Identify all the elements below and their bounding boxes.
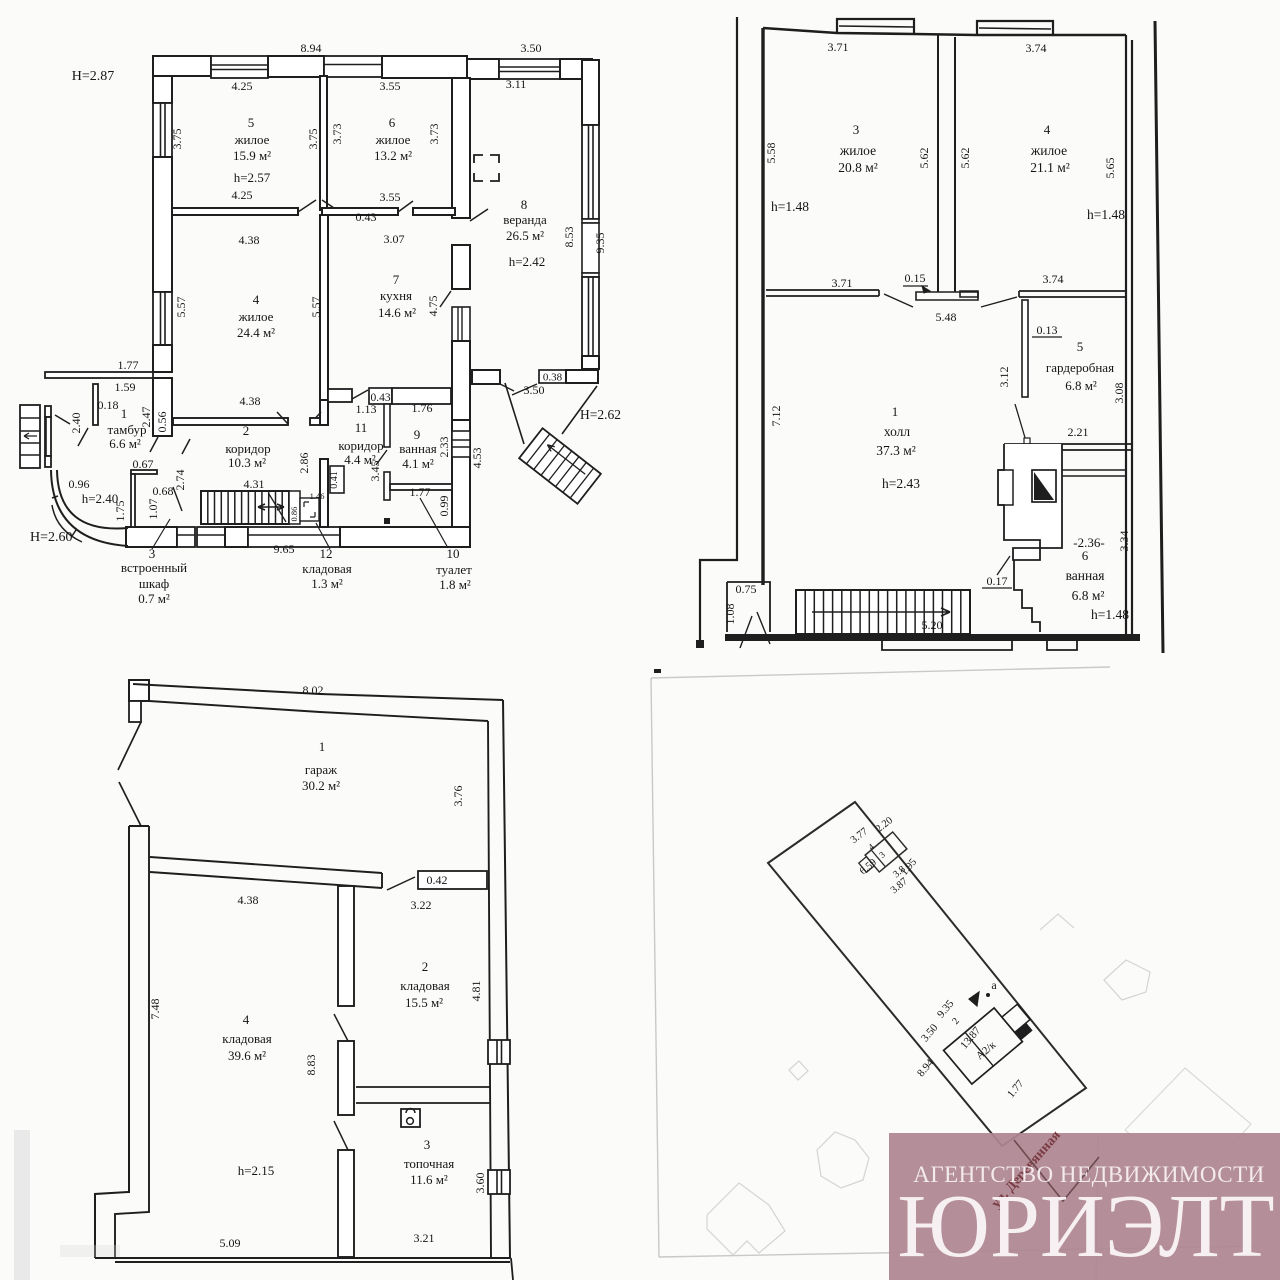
svg-text:1.13: 1.13	[356, 402, 377, 416]
svg-text:4.38: 4.38	[239, 233, 260, 247]
svg-text:1.3 м²: 1.3 м²	[311, 576, 343, 591]
svg-text:2.47: 2.47	[139, 407, 153, 428]
svg-text:1: 1	[892, 404, 899, 419]
svg-text:1.8 м²: 1.8 м²	[439, 577, 471, 592]
svg-text:5: 5	[248, 115, 255, 130]
svg-text:жилое: жилое	[238, 309, 274, 324]
svg-text:3.71: 3.71	[832, 276, 853, 290]
svg-text:10.3 м²: 10.3 м²	[228, 455, 266, 470]
svg-text:гардеробная: гардеробная	[1046, 360, 1114, 375]
svg-text:жилое: жилое	[1030, 143, 1067, 158]
svg-text:0.75: 0.75	[736, 582, 757, 596]
svg-text:0.86: 0.86	[289, 507, 299, 522]
svg-text:15.9 м²: 15.9 м²	[233, 148, 271, 163]
svg-text:0.68: 0.68	[153, 484, 174, 498]
svg-text:4.1 м²: 4.1 м²	[402, 456, 434, 471]
svg-text:2.33: 2.33	[437, 437, 451, 458]
svg-text:кладовая: кладовая	[400, 978, 449, 993]
svg-text:3.07: 3.07	[384, 232, 405, 246]
svg-text:8.02: 8.02	[303, 683, 324, 697]
svg-text:туалет: туалет	[436, 562, 472, 577]
svg-text:0.17: 0.17	[987, 574, 1008, 588]
svg-text:3.55: 3.55	[380, 79, 401, 93]
svg-text:5: 5	[1077, 339, 1084, 354]
svg-text:4: 4	[243, 1012, 250, 1027]
svg-text:h=2.57: h=2.57	[234, 170, 271, 185]
svg-text:21.1 м²: 21.1 м²	[1030, 160, 1070, 175]
svg-text:5.09: 5.09	[220, 1236, 241, 1250]
svg-text:8: 8	[521, 197, 528, 212]
svg-text:0.96: 0.96	[69, 477, 90, 491]
svg-text:6: 6	[389, 115, 396, 130]
svg-text:0.43: 0.43	[356, 210, 377, 224]
svg-text:1: 1	[319, 739, 326, 754]
svg-text:3.11: 3.11	[506, 77, 527, 91]
svg-text:2.86: 2.86	[297, 453, 311, 474]
svg-text:1: 1	[121, 406, 128, 421]
svg-text:2.40: 2.40	[69, 413, 83, 434]
svg-text:4.31: 4.31	[244, 477, 265, 491]
svg-text:5.58: 5.58	[764, 143, 778, 164]
svg-text:5.57: 5.57	[309, 297, 323, 318]
svg-text:3.22: 3.22	[411, 898, 432, 912]
svg-text:0.18: 0.18	[98, 398, 119, 412]
svg-text:1.46: 1.46	[310, 491, 325, 501]
svg-text:20.8 м²: 20.8 м²	[838, 160, 878, 175]
svg-text:встроенный: встроенный	[121, 560, 187, 575]
svg-text:30.2 м²: 30.2 м²	[302, 778, 340, 793]
svg-text:топочная: топочная	[404, 1156, 454, 1171]
svg-text:3.34: 3.34	[1117, 531, 1131, 552]
svg-text:8.83: 8.83	[304, 1055, 318, 1076]
svg-text:коридор: коридор	[225, 441, 270, 456]
svg-text:2.74: 2.74	[173, 470, 187, 491]
svg-text:0.7 м²: 0.7 м²	[138, 591, 170, 606]
svg-text:5.57: 5.57	[174, 297, 188, 318]
svg-text:6.8 м²: 6.8 м²	[1065, 378, 1097, 393]
svg-text:7.48: 7.48	[148, 999, 162, 1020]
svg-text:3.73: 3.73	[427, 124, 441, 145]
svg-text:3.50: 3.50	[524, 383, 545, 397]
svg-text:3.75: 3.75	[170, 129, 184, 150]
svg-text:4.38: 4.38	[240, 394, 261, 408]
svg-text:веранда: веранда	[503, 212, 547, 227]
svg-text:2.21: 2.21	[1068, 425, 1089, 439]
svg-text:10: 10	[447, 546, 460, 561]
svg-text:гараж: гараж	[305, 762, 338, 777]
svg-text:9.65: 9.65	[274, 542, 295, 556]
svg-text:5.48: 5.48	[936, 310, 957, 324]
svg-text:3.08: 3.08	[1112, 383, 1126, 404]
svg-text:0.56: 0.56	[155, 412, 169, 433]
svg-text:3.55: 3.55	[380, 190, 401, 204]
svg-text:3.45: 3.45	[368, 461, 382, 482]
svg-text:3.75: 3.75	[306, 129, 320, 150]
svg-text:4.25: 4.25	[232, 79, 253, 93]
svg-text:2: 2	[422, 959, 429, 974]
svg-text:H=2.87: H=2.87	[72, 69, 115, 84]
svg-text:26.5 м²: 26.5 м²	[506, 228, 544, 243]
svg-text:7.12: 7.12	[769, 406, 783, 427]
svg-text:6.6 м²: 6.6 м²	[109, 436, 141, 451]
svg-text:6.8 м²: 6.8 м²	[1072, 588, 1105, 603]
svg-text:-2.36-: -2.36-	[1073, 535, 1104, 550]
svg-text:h=1.48: h=1.48	[771, 199, 809, 214]
svg-text:h=1.48: h=1.48	[1087, 207, 1125, 222]
svg-text:4.53: 4.53	[470, 448, 484, 469]
svg-text:24.4 м²: 24.4 м²	[237, 325, 275, 340]
svg-text:4.81: 4.81	[469, 981, 483, 1002]
svg-text:8.53: 8.53	[562, 227, 576, 248]
svg-text:6: 6	[1082, 548, 1089, 563]
svg-text:h=1.48: h=1.48	[1091, 607, 1129, 622]
svg-text:ванная: ванная	[399, 441, 436, 456]
svg-text:h=2.15: h=2.15	[238, 1163, 275, 1178]
svg-text:3.60: 3.60	[473, 1173, 487, 1194]
svg-text:8.94: 8.94	[301, 41, 322, 55]
svg-text:7: 7	[393, 272, 400, 287]
svg-text:жилое: жилое	[375, 132, 411, 147]
svg-text:1.75: 1.75	[113, 501, 127, 522]
svg-text:1.59: 1.59	[115, 380, 136, 394]
svg-text:13.2 м²: 13.2 м²	[374, 148, 412, 163]
svg-text:39.6 м²: 39.6 м²	[228, 1048, 266, 1063]
svg-text:ЮРИЭЛТ: ЮРИЭЛТ	[897, 1177, 1274, 1276]
svg-text:h=2.43: h=2.43	[882, 476, 920, 491]
svg-text:холл: холл	[884, 424, 911, 439]
svg-text:1.08: 1.08	[723, 604, 737, 625]
svg-text:15.5 м²: 15.5 м²	[405, 995, 443, 1010]
svg-text:11: 11	[355, 420, 368, 435]
svg-text:3.74: 3.74	[1043, 272, 1064, 286]
svg-text:3.12: 3.12	[997, 367, 1011, 388]
svg-text:H=2.62: H=2.62	[580, 407, 621, 422]
svg-text:а: а	[991, 978, 997, 992]
svg-text:коридор: коридор	[338, 438, 383, 453]
svg-text:4.38: 4.38	[238, 893, 259, 907]
svg-text:0.15: 0.15	[905, 271, 926, 285]
svg-text:5.62: 5.62	[917, 148, 931, 169]
svg-text:5.65: 5.65	[1103, 158, 1117, 179]
svg-text:2: 2	[243, 423, 250, 438]
svg-text:1.76: 1.76	[412, 401, 433, 415]
svg-text:11.6 м²: 11.6 м²	[410, 1172, 448, 1187]
svg-text:0.42: 0.42	[427, 873, 448, 887]
svg-text:3.74: 3.74	[1026, 41, 1047, 55]
svg-text:3.71: 3.71	[828, 40, 849, 54]
svg-text:кладовая: кладовая	[302, 561, 351, 576]
svg-text:5.62: 5.62	[958, 148, 972, 169]
svg-text:37.3 м²: 37.3 м²	[876, 443, 916, 458]
svg-text:0.38: 0.38	[543, 372, 563, 384]
svg-text:1.77: 1.77	[118, 358, 139, 372]
svg-text:0.13: 0.13	[1037, 323, 1058, 337]
svg-text:9: 9	[414, 427, 421, 442]
svg-text:ванная: ванная	[1066, 568, 1105, 583]
svg-text:3: 3	[853, 122, 860, 137]
svg-text:3.50: 3.50	[521, 41, 542, 55]
svg-text:кухня: кухня	[380, 288, 412, 303]
svg-text:5.20: 5.20	[922, 618, 943, 632]
svg-text:жилое: жилое	[234, 132, 270, 147]
svg-text:4: 4	[1044, 122, 1051, 137]
svg-text:14.6 м²: 14.6 м²	[378, 305, 416, 320]
svg-text:4.75: 4.75	[426, 296, 440, 317]
svg-text:0.41: 0.41	[329, 471, 340, 489]
svg-text:0.67: 0.67	[133, 457, 154, 471]
svg-text:4.25: 4.25	[232, 188, 253, 202]
svg-text:1.77: 1.77	[410, 485, 431, 499]
svg-text:1.07: 1.07	[146, 499, 160, 520]
svg-text:H=2.60: H=2.60	[30, 530, 73, 545]
svg-text:3.73: 3.73	[330, 124, 344, 145]
svg-text:9.35: 9.35	[593, 233, 607, 254]
svg-text:3.21: 3.21	[414, 1231, 435, 1245]
svg-text:кладовая: кладовая	[222, 1031, 271, 1046]
svg-text:3: 3	[424, 1137, 431, 1152]
svg-text:шкаф: шкаф	[139, 576, 169, 591]
svg-text:4: 4	[253, 292, 260, 307]
svg-text:жилое: жилое	[839, 143, 876, 158]
svg-text:0.99: 0.99	[437, 496, 451, 517]
svg-text:h=2.42: h=2.42	[509, 254, 546, 269]
svg-text:3.76: 3.76	[451, 786, 465, 807]
svg-text:12: 12	[320, 546, 333, 561]
